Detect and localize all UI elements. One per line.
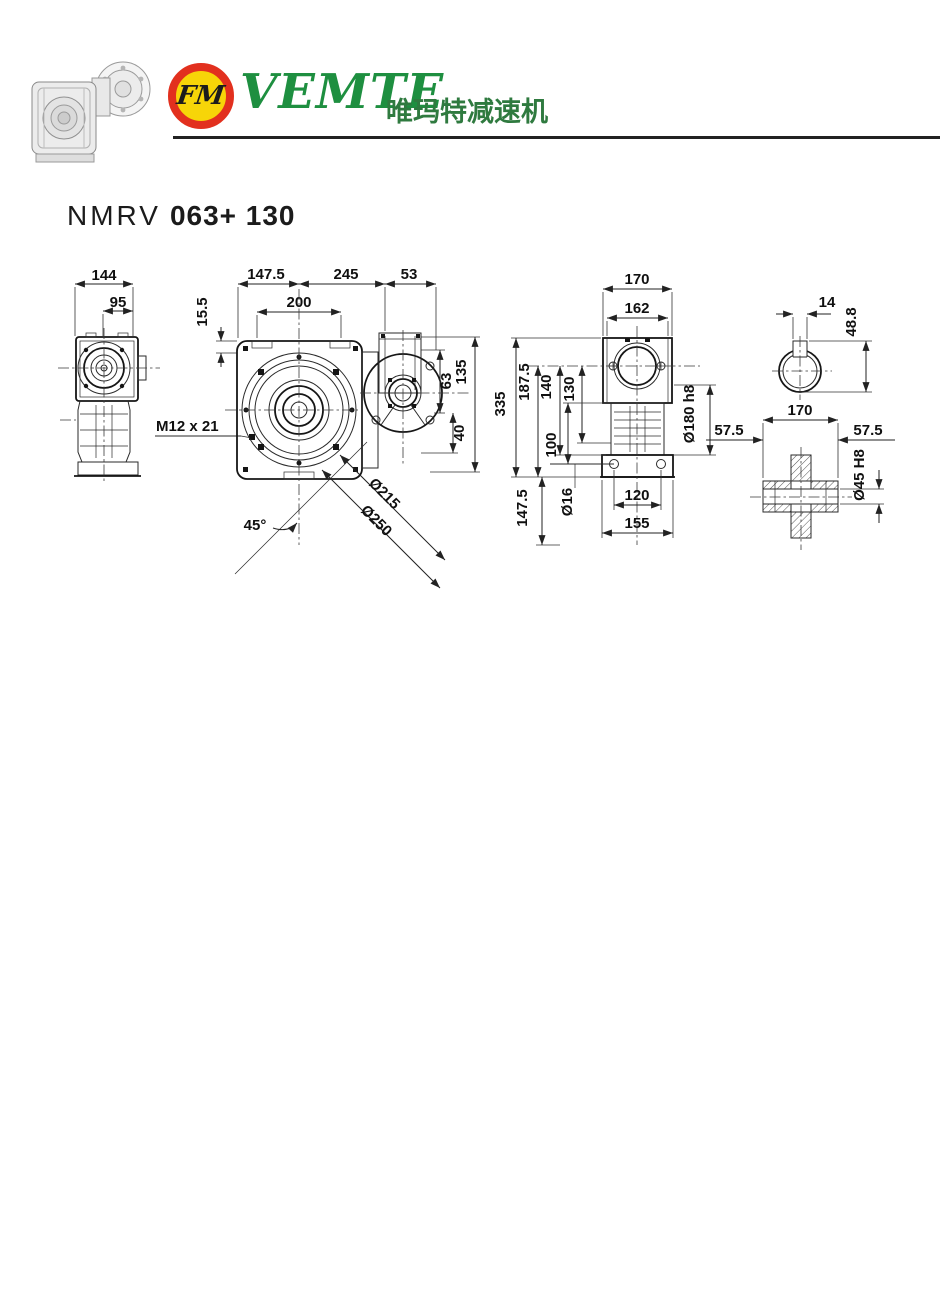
dim-label-170-shaft: 170: [787, 402, 812, 419]
dim-label-40: 40: [451, 425, 468, 442]
dim-label-d16: Ø16: [559, 488, 576, 516]
dim-label-d180h8: Ø180 h8: [681, 385, 698, 443]
dim-label-d45h8: Ø45 H8: [851, 449, 868, 501]
dim-label-147-5: 147.5: [247, 266, 285, 283]
model-title: NMRV063+ 130: [67, 200, 296, 232]
thread-callout: M12 x 21: [155, 418, 255, 440]
fm-logo-badge: FM: [168, 63, 234, 129]
model-number: 063+ 130: [170, 200, 296, 231]
header-rule: [173, 136, 940, 139]
dim-label-162: 162: [624, 300, 649, 317]
dim-label-140: 140: [538, 374, 555, 399]
technical-drawing: 144 95 M12 x 21: [0, 250, 950, 610]
dim-label-135: 135: [453, 359, 470, 384]
model-series: NMRV: [67, 200, 161, 231]
fm-logo-text: FM: [175, 81, 226, 111]
dim-label-57-5-left: 57.5: [714, 422, 743, 439]
dim-label-48-8: 48.8: [843, 307, 860, 336]
dim-label-57-5-right: 57.5: [853, 422, 882, 439]
gearbox-product-photo: [26, 56, 156, 166]
dim-label-147-5-rear: 147.5: [514, 489, 531, 527]
front-view: 147.5 245 53 200 15.5: [194, 266, 480, 588]
dim-label-130: 130: [561, 376, 578, 401]
dim-label-53: 53: [401, 266, 418, 283]
dim-label-14: 14: [819, 294, 836, 311]
brand-name-chinese: 唯玛特减速机: [386, 90, 548, 129]
dim-label-120: 120: [624, 487, 649, 504]
catalog-page: { "header": { "badge_text": "FM", "brand…: [0, 0, 950, 1307]
dim-label-245: 245: [333, 266, 358, 283]
dim-label-335: 335: [492, 391, 509, 416]
output-shaft-section: 170 57.5 57.5 Ø45 H8: [706, 402, 895, 550]
dim-label-15-5: 15.5: [194, 297, 211, 326]
dim-label-45deg: 45°: [244, 517, 267, 534]
dim-label-187-5: 187.5: [516, 363, 533, 401]
side-view: 144 95: [58, 267, 160, 484]
dim-label-95: 95: [110, 294, 127, 311]
dim-label-170-rear: 170: [624, 271, 649, 288]
thread-label: M12 x 21: [156, 418, 219, 435]
dim-label-100: 100: [543, 432, 560, 457]
input-shaft-section: 14 48.8: [772, 294, 872, 400]
dim-label-155: 155: [624, 515, 649, 532]
dim-label-144: 144: [91, 267, 117, 284]
rear-view: 170 162 335 187.5 140: [492, 271, 716, 545]
